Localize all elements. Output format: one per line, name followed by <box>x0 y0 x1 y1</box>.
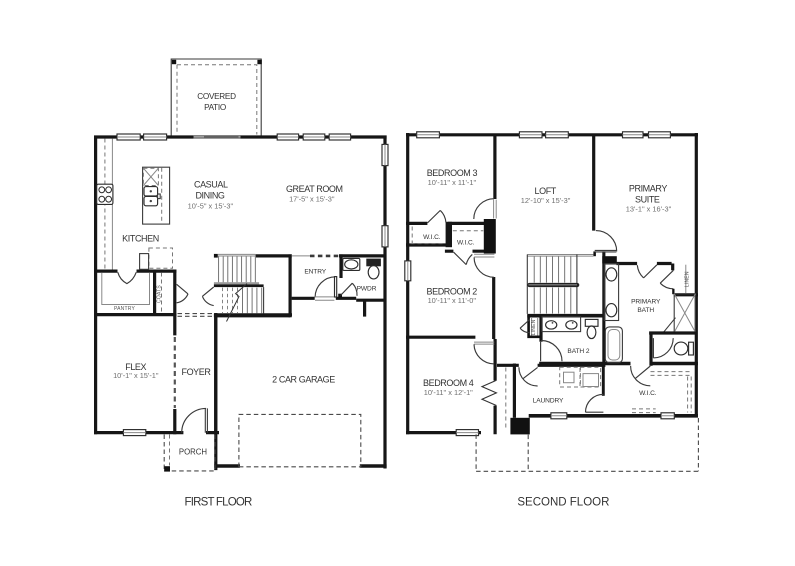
svg-text:BATH: BATH <box>637 307 654 314</box>
svg-text:BEDROOM 4: BEDROOM 4 <box>423 378 474 388</box>
svg-text:FOYER: FOYER <box>181 367 211 377</box>
svg-text:PATIO: PATIO <box>204 103 226 112</box>
svg-text:10'-11" x 12'-1": 10'-11" x 12'-1" <box>424 388 473 397</box>
svg-text:BATH 2: BATH 2 <box>567 348 589 355</box>
svg-text:PANTRY: PANTRY <box>114 306 135 312</box>
svg-text:FIRST FLOOR: FIRST FLOOR <box>184 497 252 509</box>
svg-text:PRIMARY: PRIMARY <box>629 184 667 194</box>
svg-text:BEDROOM 2: BEDROOM 2 <box>426 286 477 296</box>
svg-text:COVERED: COVERED <box>197 92 236 101</box>
svg-text:W.I.C.: W.I.C. <box>457 240 475 247</box>
svg-text:LAUNDRY: LAUNDRY <box>533 398 564 405</box>
svg-text:PORCH: PORCH <box>179 448 207 457</box>
svg-text:12'-10" x 15'-3": 12'-10" x 15'-3" <box>521 196 571 205</box>
svg-text:ENTRY: ENTRY <box>304 268 326 275</box>
svg-text:LOFT: LOFT <box>534 186 556 196</box>
svg-text:10'-11" x 11'-0": 10'-11" x 11'-0" <box>428 296 477 305</box>
svg-text:10'-5" x 15'-3": 10'-5" x 15'-3" <box>188 201 234 210</box>
svg-text:GREAT ROOM: GREAT ROOM <box>286 184 343 194</box>
svg-text:17'-5" x 15'-3": 17'-5" x 15'-3" <box>289 195 335 204</box>
svg-text:PWDR: PWDR <box>357 286 377 293</box>
svg-text:BEDROOM 3: BEDROOM 3 <box>427 168 478 178</box>
svg-text:2 CAR GARAGE: 2 CAR GARAGE <box>272 374 335 384</box>
svg-text:10'-11" x 11'-1": 10'-11" x 11'-1" <box>428 178 477 187</box>
svg-text:W.I.C.: W.I.C. <box>639 390 657 397</box>
svg-text:SUITE: SUITE <box>635 195 660 205</box>
svg-text:SECOND FLOOR: SECOND FLOOR <box>517 497 609 509</box>
svg-text:PRIMARY: PRIMARY <box>631 298 661 305</box>
svg-text:LINEN: LINEN <box>685 271 691 287</box>
svg-text:CASUAL: CASUAL <box>194 179 228 189</box>
svg-text:LINEN: LINEN <box>531 319 537 335</box>
svg-text:W.I.C.: W.I.C. <box>423 234 441 241</box>
svg-text:10'-1" x 15'-1": 10'-1" x 15'-1" <box>113 371 159 380</box>
svg-text:DINING: DINING <box>195 191 224 201</box>
svg-text:KITCHEN: KITCHEN <box>122 233 159 243</box>
svg-text:COATS: COATS <box>157 285 163 303</box>
svg-text:13'-1" x 16'-3": 13'-1" x 16'-3" <box>626 205 672 214</box>
